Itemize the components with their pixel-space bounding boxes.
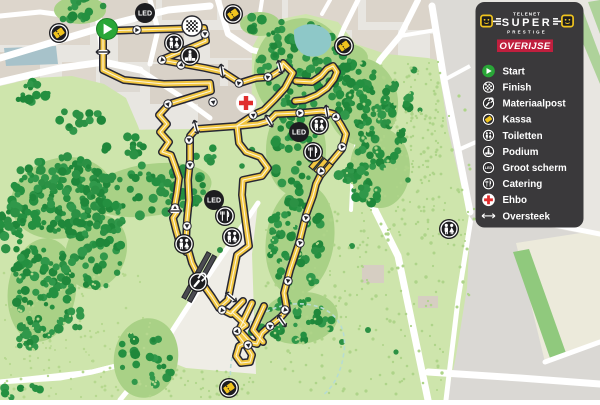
svg-text:LED: LED [485, 166, 493, 170]
svg-text:Kassa: Kassa [503, 115, 532, 126]
svg-text:LED: LED [292, 130, 306, 137]
svg-text:Oversteek: Oversteek [503, 211, 551, 222]
svg-text:Ehbo: Ehbo [503, 195, 528, 206]
svg-text:Toiletten: Toiletten [503, 131, 543, 142]
svg-text:Groot scherm: Groot scherm [503, 163, 568, 174]
svg-text:OVERIJSE: OVERIJSE [499, 41, 550, 52]
svg-text:Start: Start [503, 66, 526, 77]
svg-text:SUPER: SUPER [502, 17, 552, 29]
svg-text:Catering: Catering [503, 179, 543, 190]
svg-text:LED: LED [138, 11, 152, 18]
svg-text:PRESTIGE: PRESTIGE [507, 30, 547, 35]
svg-text:LED: LED [207, 198, 221, 205]
svg-text:Finish: Finish [503, 83, 532, 94]
svg-text:Materiaalpost: Materiaalpost [503, 99, 567, 110]
svg-text:Podium: Podium [503, 147, 539, 158]
svg-text:TELENET: TELENET [513, 12, 541, 17]
